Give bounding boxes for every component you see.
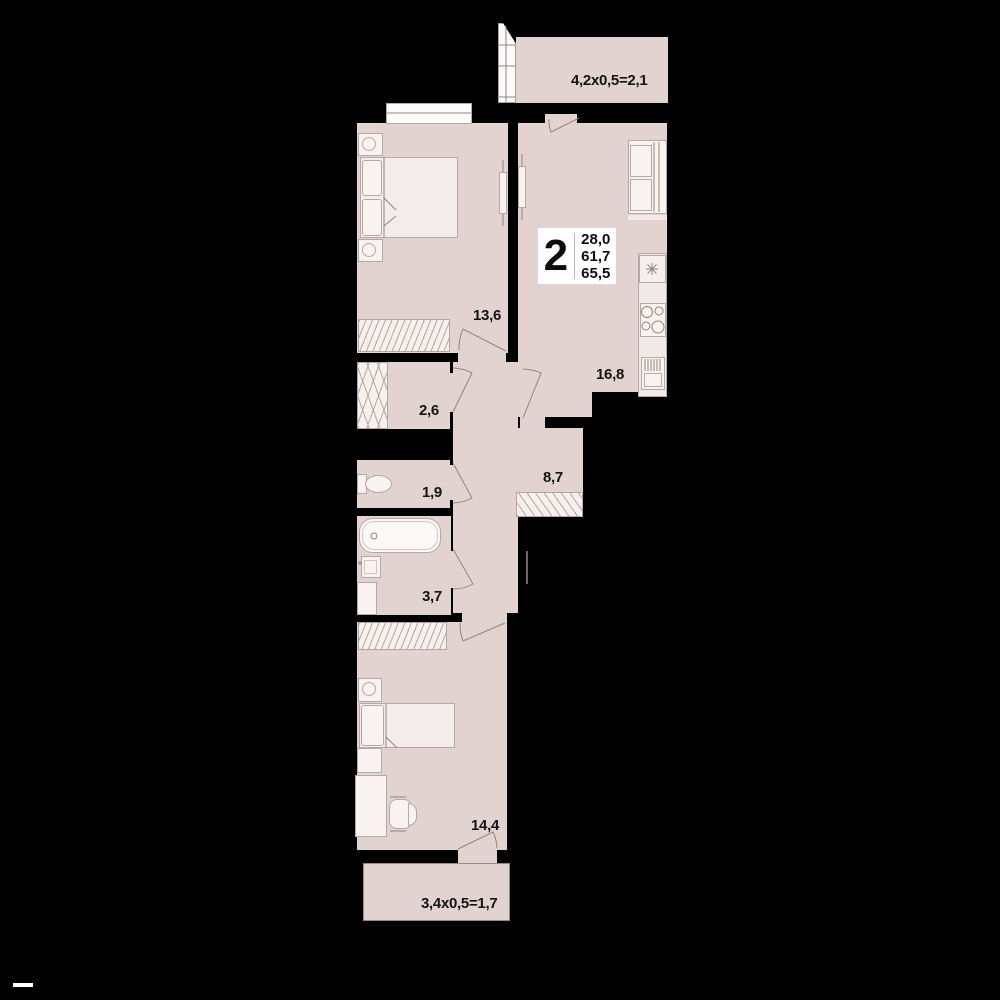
- door-opening-wc: [450, 465, 456, 500]
- balcony-top: [516, 37, 668, 103]
- wardrobe-icon-storage: [357, 362, 388, 429]
- balcony-top-label: 4,2x0,5=2,1: [571, 72, 647, 89]
- balcony-glazing-icon: [498, 23, 516, 103]
- area-line: 28,0: [581, 231, 610, 248]
- counter-edge: [628, 215, 667, 220]
- desk-icon: [355, 775, 387, 837]
- dishwasher-door: [644, 373, 662, 387]
- apartment-info-box: 2 28,0 61,7 65,5: [538, 228, 616, 284]
- room-living-kitchen-extension: [518, 392, 592, 417]
- door-opening-balcony-bottom: [458, 850, 497, 863]
- stove-icon: [640, 303, 666, 337]
- wardrobe-icon-bedroom-bottom: [358, 622, 447, 650]
- fridge-icon: [630, 145, 652, 177]
- bedroom-bottom-area-label: 14,4: [471, 817, 499, 834]
- wardrobe-icon-hall: [516, 492, 583, 517]
- door-opening-storage: [450, 373, 456, 412]
- door-opening-bedroom-bottom: [462, 613, 507, 622]
- door-opening-kitchen: [520, 417, 545, 428]
- info-divider: [574, 233, 575, 279]
- kitchen-sink-icon: [639, 255, 666, 283]
- area-line: 65,5: [581, 265, 610, 282]
- sliding-door-icon: [518, 166, 526, 208]
- lamp-icon: [362, 243, 376, 257]
- door-opening-bedroom-top: [458, 353, 506, 363]
- pillow-icon: [361, 705, 384, 746]
- wc-area-label: 1,9: [422, 484, 442, 501]
- bedroom-top-area-label: 13,6: [473, 307, 501, 324]
- window-icon-bedroom-top: [386, 103, 472, 124]
- sliding-door-icon: [499, 172, 507, 214]
- living-kitchen-area-label: 16,8: [596, 366, 624, 383]
- room-hall-corridor: [453, 362, 518, 613]
- door-opening-bathroom: [450, 551, 456, 588]
- bathroom-area-label: 3,7: [422, 588, 442, 605]
- side-table-icon: [357, 748, 382, 773]
- floor-plan: 2 28,0 61,7 65,5 4,2x0,5=2,1 13,6 16,8 2…: [0, 0, 1000, 1000]
- lamp-icon: [362, 682, 376, 696]
- wardrobe-icon-bedroom-top: [358, 319, 450, 352]
- lamp-icon: [362, 137, 376, 151]
- door-opening-balcony-top: [545, 114, 577, 123]
- area-line: 61,7: [581, 248, 610, 265]
- room-count: 2: [544, 234, 568, 278]
- storage-area-label: 2,6: [419, 402, 439, 419]
- washing-machine-icon: [357, 582, 377, 615]
- pillow-icon: [362, 199, 382, 236]
- pillow-icon: [362, 160, 382, 196]
- toilet-bowl-icon: [365, 475, 392, 493]
- hall-area-label: 8,7: [543, 469, 563, 486]
- balcony-bottom: [363, 863, 510, 921]
- bathroom-sink-basin: [364, 560, 377, 574]
- bathtub-inner: [362, 521, 438, 550]
- corner-mark: [13, 983, 33, 987]
- balcony-bottom-label: 3,4x0,5=1,7: [421, 895, 497, 912]
- fridge-icon: [630, 179, 652, 211]
